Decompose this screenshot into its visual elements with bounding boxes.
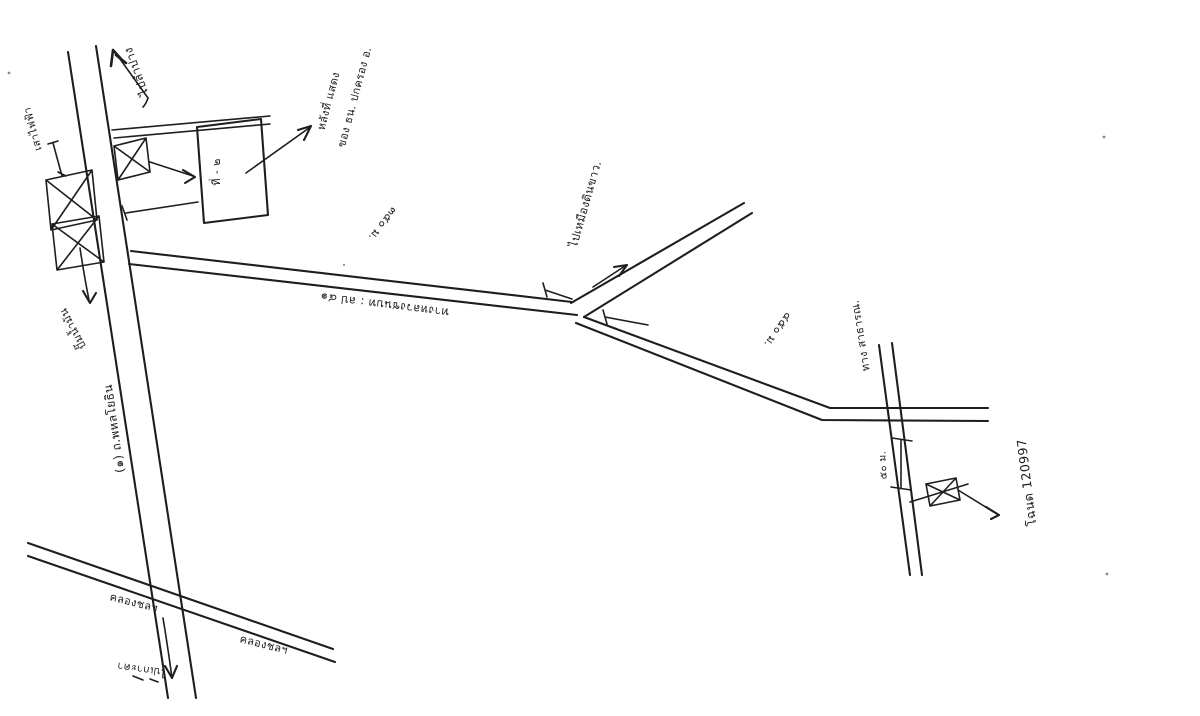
to-clay-mine-label: ไปเหมืองดินขาว. (566, 159, 604, 250)
dimension-tick-junction (543, 283, 572, 299)
sketch-map-page: ไปลำปาง เสาไฟฟ้า ปั๊มน้ำมัน ที่ - ๒ หลัง… (0, 0, 1200, 716)
gas-station-boxes (46, 170, 104, 270)
arrow-to-clay-mine (593, 265, 627, 287)
building-callout-line2: ของ ธน. ปกครอง อ. (335, 45, 374, 148)
arrow-to-gas-station-label (80, 248, 96, 303)
building-callout-line1: หลังที่ แสดง (313, 70, 343, 132)
deed-number-label: โฉนด 120997 (1014, 438, 1040, 527)
branch-road-northeast (571, 203, 752, 317)
to-lampang-label: ไปลำปาง (121, 45, 152, 98)
rural-road-label: ทางหลวงชนบท : ลป ๔๑ (319, 290, 449, 320)
scan-specks (8, 72, 1109, 576)
gas-station-label: ปั๊มน้ำมัน (55, 306, 89, 353)
sketch-map-canvas: ไปลำปาง เสาไฟฟ้า ปั๊มน้ำมัน ที่ - ๒ หลัง… (0, 0, 1200, 716)
canal-label-right: คลองชลฯ (238, 632, 289, 657)
highway-name-label: (๑) ถ.พหลโยธิน (101, 383, 127, 473)
dimension-tick-branch-b (603, 310, 648, 325)
dimension-tick-west (122, 202, 198, 220)
public-way-label: ทาง สาธารณ. (848, 299, 872, 372)
small-crossed-box (114, 138, 150, 180)
electric-pole-label: เสาไฟฟ้า (21, 106, 45, 153)
building-interior-label: ที่ - ๒ (208, 158, 223, 185)
arrow-from-small-box (150, 162, 195, 183)
arrow-to-deed-parcel (958, 490, 999, 519)
parcel-crossed-box (910, 478, 968, 506)
fence-line (112, 116, 270, 138)
distance-50m-label: ๕๐ ม. (877, 451, 889, 480)
to-kokha-label: ไปเกาะคา (116, 660, 168, 680)
building-outline (197, 119, 268, 223)
distance-450m-label: ๔๕๐ ม. (761, 310, 795, 350)
electric-pole-symbol (48, 141, 66, 176)
arrow-building-callout (246, 126, 311, 173)
distance-350m-label: ๓๕๐ ม. (366, 205, 400, 244)
